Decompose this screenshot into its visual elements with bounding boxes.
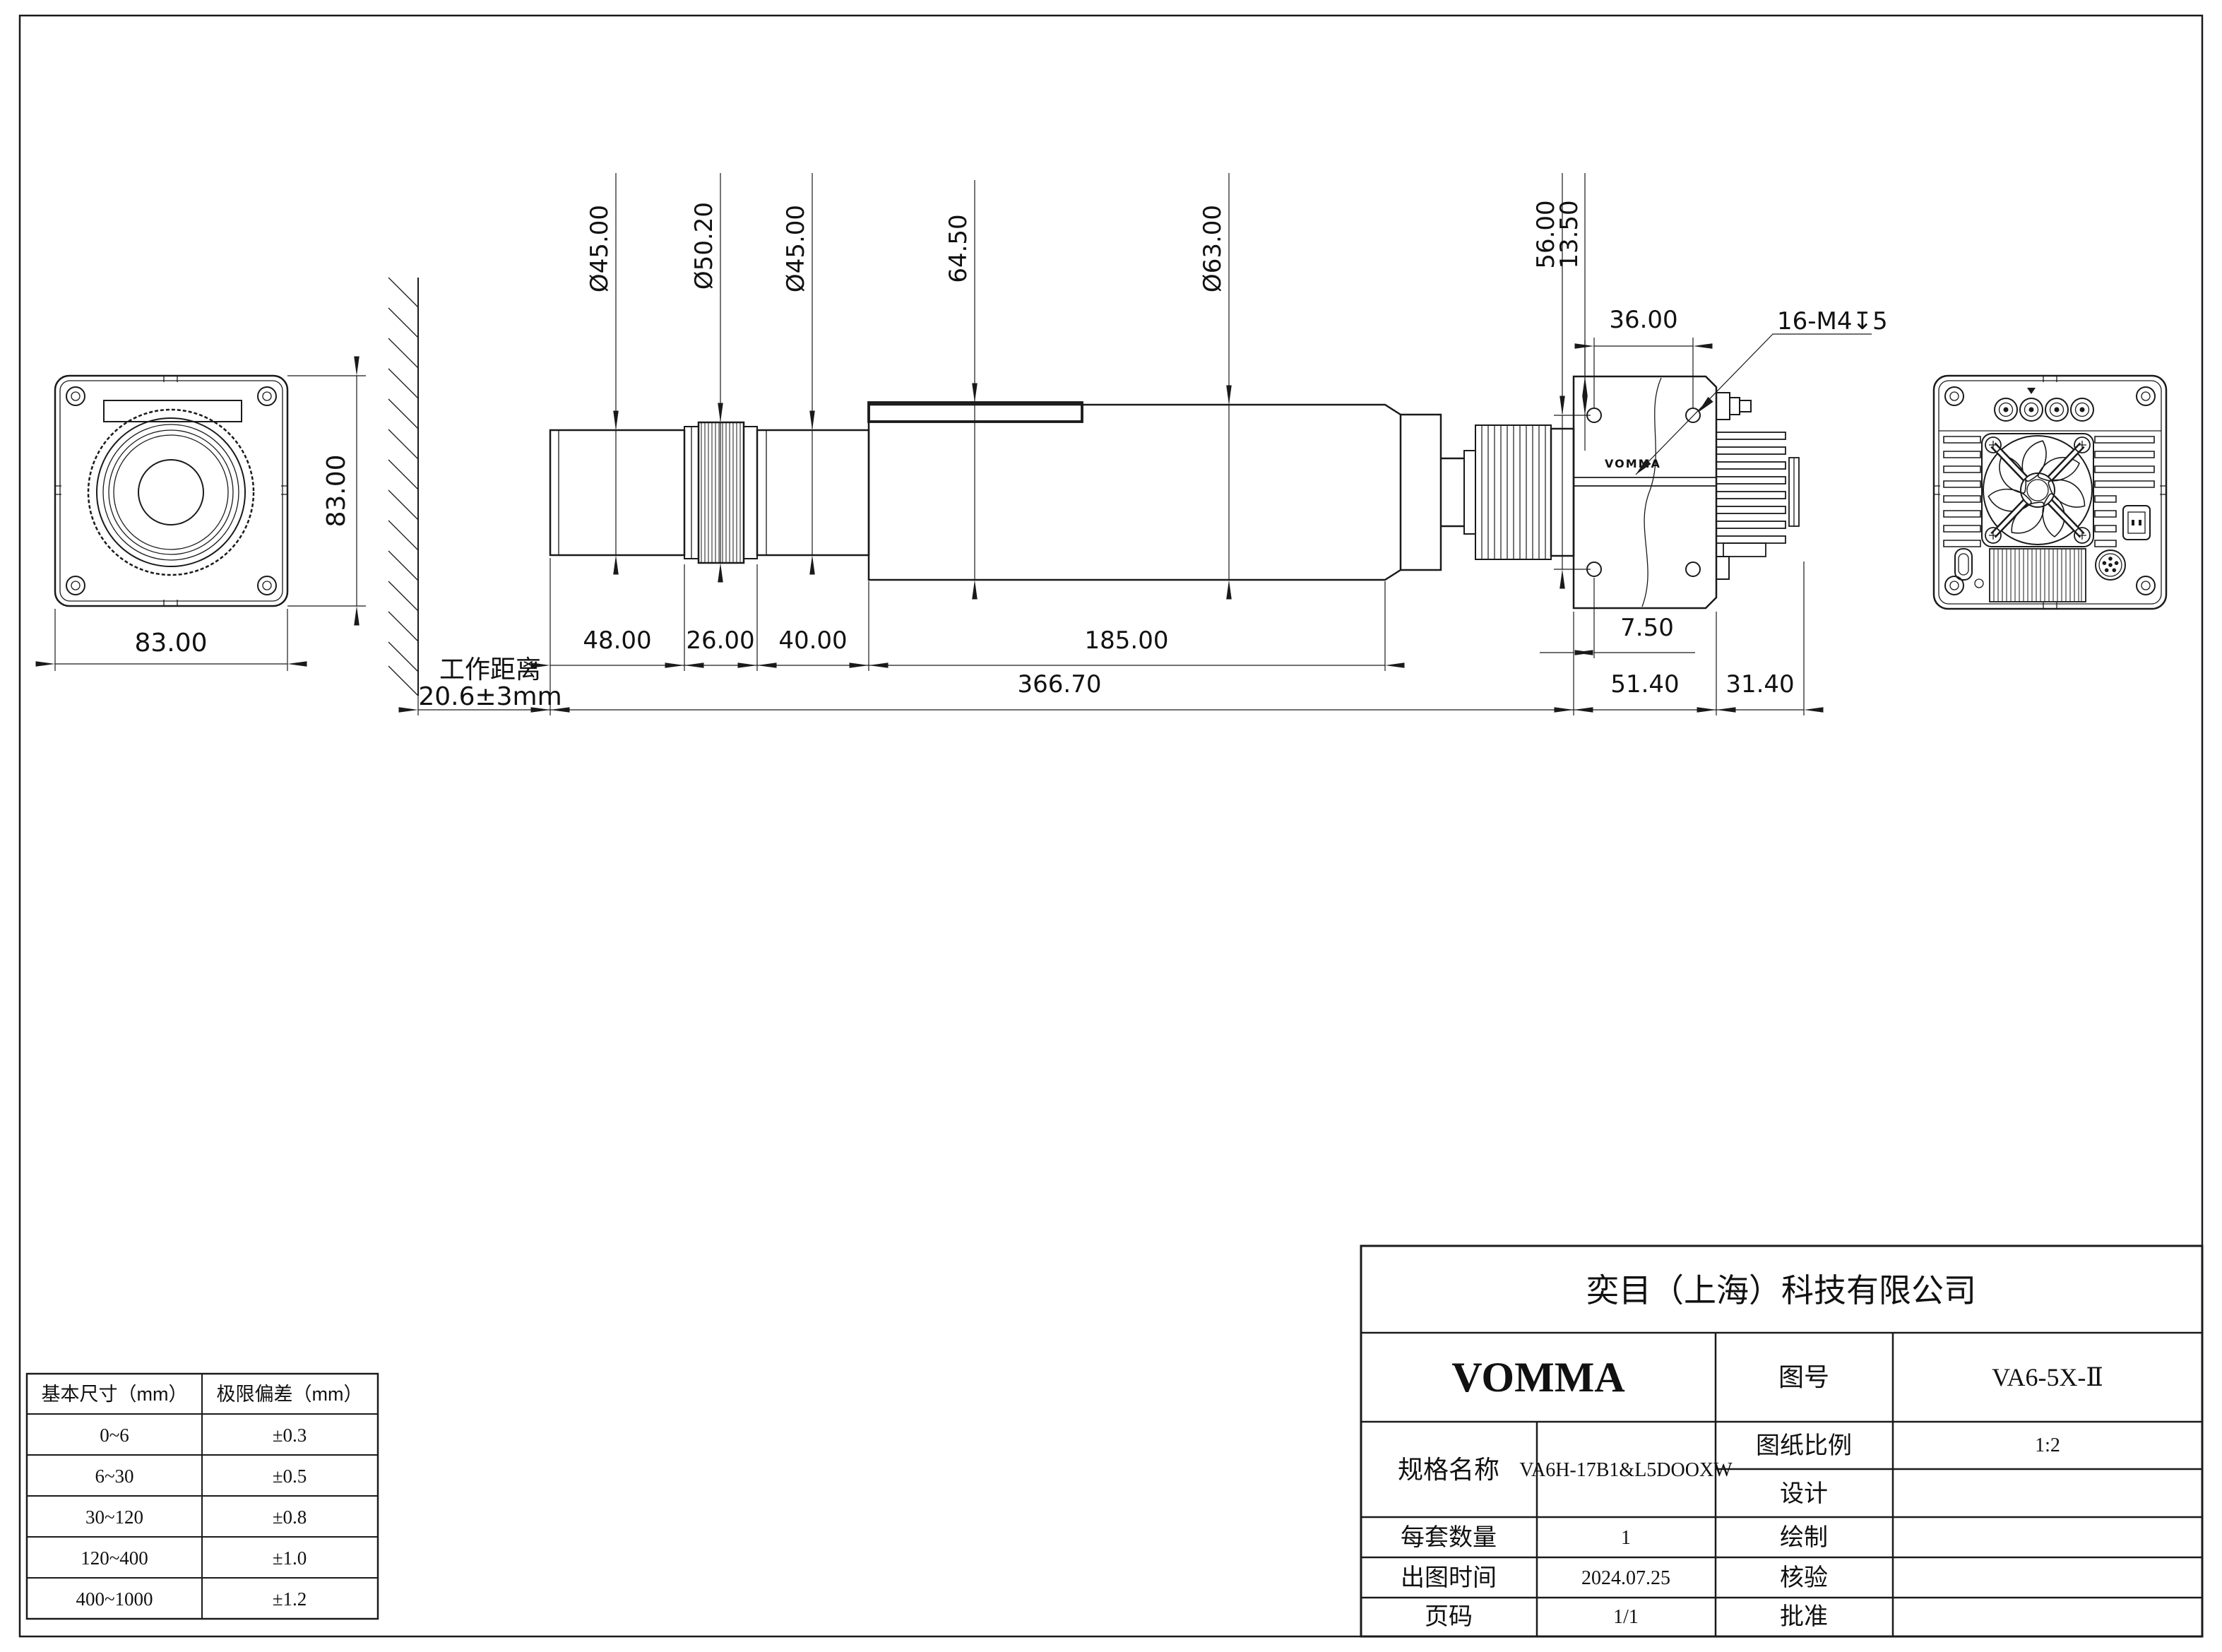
heatsink [1716, 432, 1799, 579]
drawing-no-value: VA6-5X-Ⅱ [1992, 1363, 2103, 1391]
tol-header-size: 基本尺寸（mm） [42, 1384, 188, 1405]
len-185-dim: 185.00 [1085, 626, 1169, 655]
dia-front-dim: Ø45.00 [586, 205, 614, 292]
draft-label: 绘制 [1780, 1524, 1828, 1551]
len-26-dim: 26.00 [686, 626, 754, 655]
company-name: 奕目（上海）科技有限公司 [1586, 1273, 1976, 1309]
brand-name: VOMMA [1451, 1354, 1624, 1401]
qty-value: 1 [1621, 1527, 1631, 1549]
thread-note: 16-M4↧5 [1777, 307, 1888, 335]
front-barrel [550, 430, 684, 555]
tol-row-dev: ±1.2 [273, 1588, 307, 1610]
tol-row-dev: ±0.8 [273, 1507, 307, 1528]
title-block: 奕目（上海）科技有限公司 VOMMA 图号 VA6-5X-Ⅱ 规格名称 VA6H… [1361, 1246, 2202, 1636]
scale-value: 1:2 [2035, 1434, 2060, 1456]
drawing-no-label: 图号 [1778, 1363, 1829, 1391]
power-connector-icon [2123, 506, 2150, 540]
len-40-dim: 40.00 [778, 626, 847, 655]
collar-height-dim: 64.50 [944, 214, 973, 283]
date-value: 2024.07.25 [1581, 1567, 1670, 1589]
tol-row-dev: ±0.3 [273, 1425, 307, 1446]
scale-label: 图纸比例 [1756, 1432, 1852, 1459]
case-seam-notches [55, 376, 287, 606]
side-view-dimensions: Ø45.00 Ø50.20 Ø45.00 64.50 Ø63.00 56.00 … [418, 173, 1888, 715]
led-hole-icon [1975, 579, 1983, 588]
front-lens [88, 410, 254, 575]
len-7-5-dim: 7.50 [1620, 614, 1674, 642]
tol-row-size: 6~30 [95, 1466, 133, 1487]
dia-knurl-dim: Ø50.20 [690, 202, 718, 290]
main-barrel [869, 405, 1401, 580]
bottom-grille [1990, 549, 2086, 602]
mounting-wall [388, 278, 418, 696]
rear-view [1934, 376, 2166, 609]
tol-header-dev: 极限偏差（mm） [217, 1384, 363, 1405]
dia-main-dim: Ø63.00 [1199, 205, 1227, 292]
page-label: 页码 [1425, 1604, 1473, 1630]
spec-label: 规格名称 [1398, 1456, 1499, 1484]
len-body-dim: 51.40 [1610, 670, 1679, 699]
front-width-dim: 83.00 [134, 629, 207, 658]
index-triangle-icon [2027, 388, 2036, 394]
len-total-dim: 366.70 [1018, 670, 1102, 699]
fan-guard [1993, 445, 2082, 535]
design-label: 设计 [1780, 1481, 1828, 1507]
multipin-connector-icon [2096, 550, 2125, 580]
side-view: VOMMA [388, 173, 1888, 715]
rear-adapter [1401, 415, 1574, 570]
usb-c-port-icon [1955, 549, 1983, 588]
qty-label: 每套数量 [1401, 1524, 1497, 1551]
leader-arrow-icon [1698, 397, 1713, 412]
check-label: 核验 [1780, 1564, 1828, 1591]
len-heatsink-dim: 31.40 [1725, 670, 1794, 699]
cooling-fan [1982, 434, 2093, 547]
tol-row-size: 30~120 [85, 1507, 143, 1528]
front-height-dim: 83.00 [322, 454, 351, 527]
coax-connectors [1995, 388, 2093, 421]
sma-connector-icon [1716, 393, 1751, 420]
page-value: 1/1 [1613, 1606, 1639, 1628]
date-label: 出图时间 [1401, 1564, 1497, 1591]
hole-offset-v-dim: 13.50 [1555, 200, 1584, 268]
tol-row-size: 0~6 [100, 1425, 129, 1446]
tolerance-table: 基本尺寸（mm） 极限偏差（mm） 0~6 ±0.3 6~30 ±0.5 30~… [27, 1374, 378, 1619]
len-48-dim: 48.00 [583, 626, 651, 655]
working-distance-value: 20.6±3mm [418, 682, 562, 711]
spec-value: VA6H-17B1&L5DOOXW [1519, 1459, 1733, 1481]
hole-span-h-dim: 36.00 [1609, 306, 1677, 334]
camera-head: VOMMA [1574, 376, 1751, 608]
section-break-line [1642, 378, 1661, 607]
mid-barrel [757, 430, 869, 555]
tol-row-size: 120~400 [81, 1547, 148, 1569]
engineering-drawing-sheet: 83.00 83.00 [0, 0, 2222, 1652]
tol-row-size: 400~1000 [76, 1588, 153, 1610]
tol-row-dev: ±0.5 [273, 1466, 307, 1487]
approve-label: 批准 [1780, 1603, 1828, 1630]
dia-mid-dim: Ø45.00 [782, 205, 810, 292]
front-view: 83.00 83.00 [55, 376, 366, 671]
working-distance-label: 工作距离 [439, 655, 541, 684]
tol-row-dev: ±1.0 [273, 1547, 307, 1569]
side-body-logo: VOMMA [1605, 457, 1661, 470]
heatsink-foot [1716, 557, 1729, 579]
